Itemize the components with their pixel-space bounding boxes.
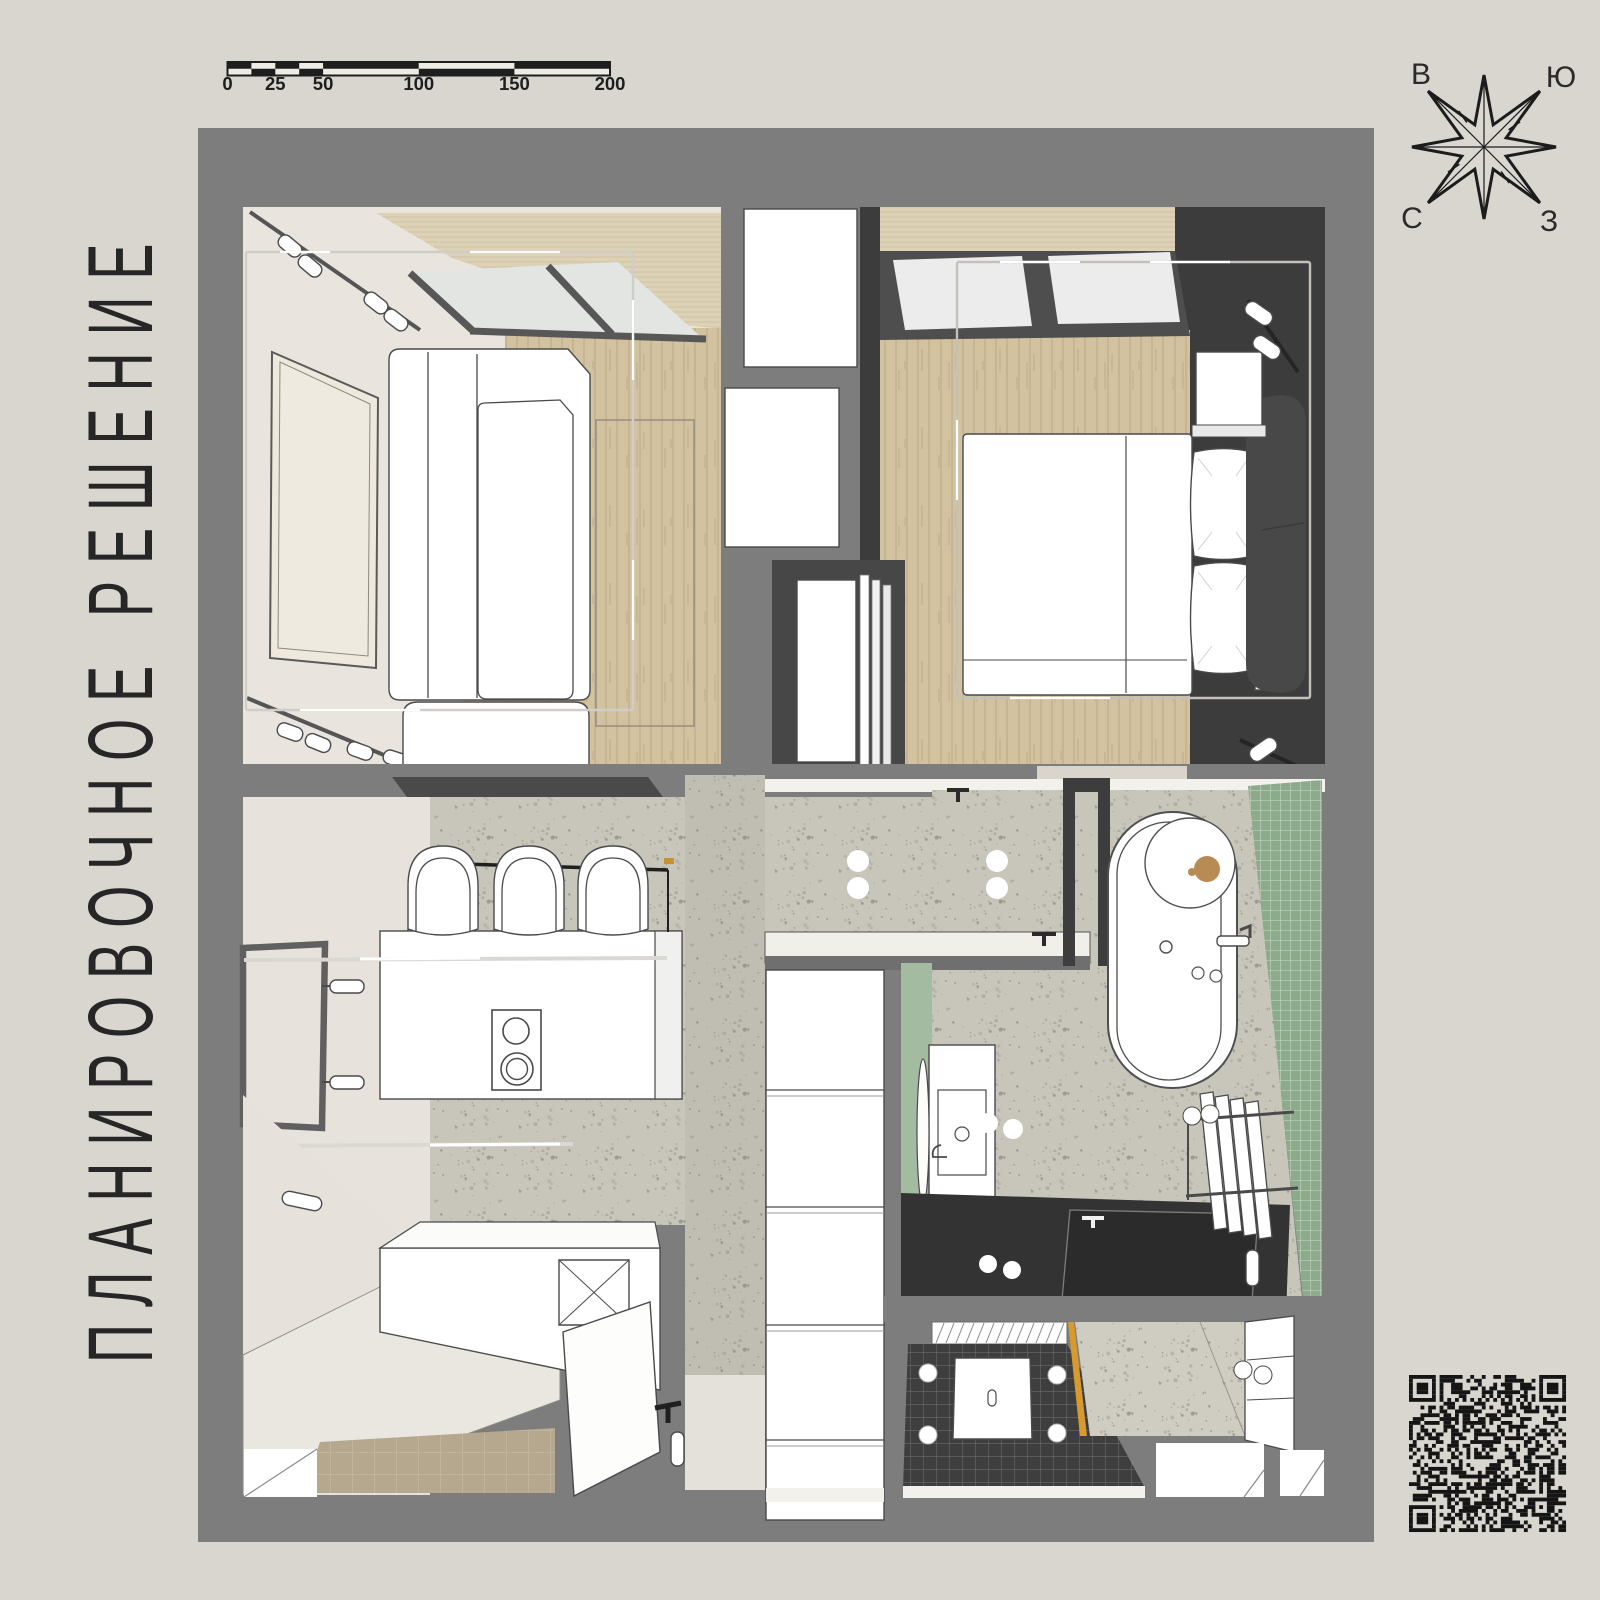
svg-text:150: 150 [499,73,530,94]
svg-text:50: 50 [313,73,334,94]
svg-text:ПЛАНИРОВОЧНОЕ РЕШЕНИЕ: ПЛАНИРОВОЧНОЕ РЕШЕНИЕ [70,227,172,1363]
svg-text:Ю: Ю [1546,61,1576,94]
svg-text:З: З [1540,205,1558,238]
svg-text:С: С [1401,202,1423,235]
svg-text:В: В [1411,58,1431,91]
svg-text:100: 100 [403,73,434,94]
svg-text:0: 0 [222,73,232,94]
svg-text:200: 200 [595,73,626,94]
svg-text:25: 25 [265,73,286,94]
